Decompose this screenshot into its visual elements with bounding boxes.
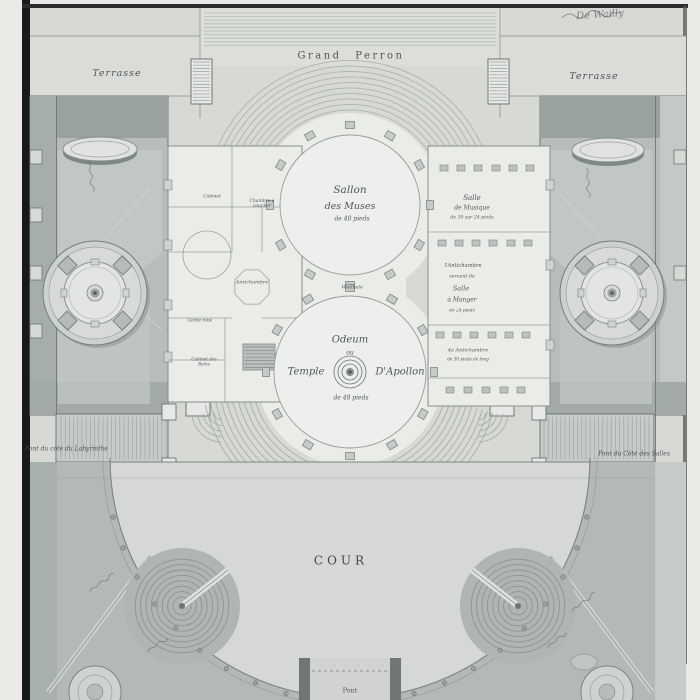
- bridge-right: [540, 414, 654, 462]
- terrace-right: [500, 36, 686, 96]
- bridge-left: [56, 414, 168, 462]
- terrace-left: [30, 36, 200, 96]
- bottom-bridge: [299, 658, 401, 700]
- salon-circle: [280, 135, 420, 275]
- plan-linework: [0, 0, 700, 700]
- odeum-circle: [274, 296, 426, 448]
- architectural-plan-drawing: De Wailly Terrasse Terrasse Grand Perron…: [0, 0, 700, 700]
